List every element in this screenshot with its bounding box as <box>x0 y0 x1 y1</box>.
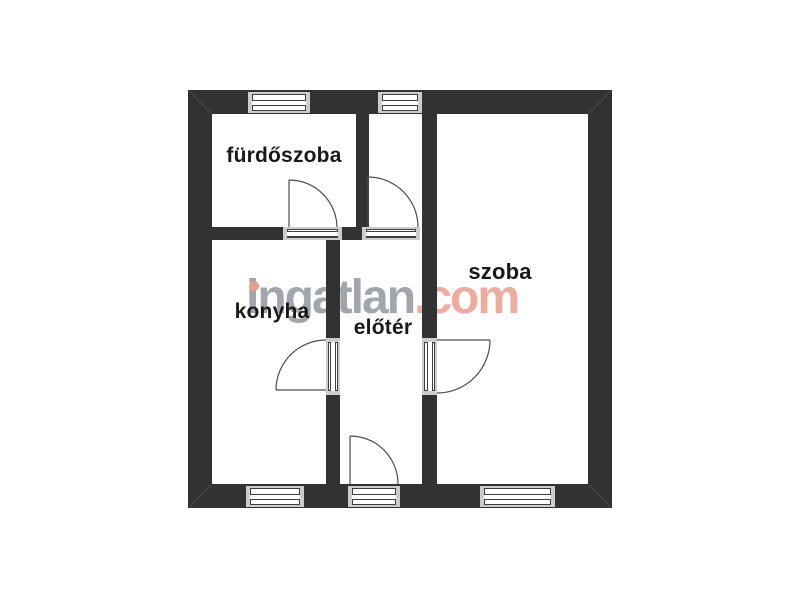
threshold-kitchen-door <box>326 338 340 395</box>
floor-plan: ingatlan.com <box>0 0 800 600</box>
corner-miter-top-right <box>588 90 612 114</box>
window-bathroom-top <box>248 92 310 113</box>
corner-miter-top-left <box>188 90 212 114</box>
corner-miter-bottom-right <box>588 484 612 508</box>
threshold-wc-door <box>362 227 420 240</box>
window-room-bottom <box>480 486 555 507</box>
window-wc-top <box>378 92 422 113</box>
room-label-eloter: előtér <box>354 316 412 340</box>
threshold-bathroom-door <box>283 227 342 240</box>
corner-miter-bottom-left <box>188 484 212 508</box>
entry-door-arc <box>350 436 398 484</box>
threshold-room-door <box>422 338 437 395</box>
room-label-szoba: szoba <box>468 259 531 285</box>
room-door-arc <box>437 340 490 393</box>
wc-door-arc <box>368 177 418 227</box>
window-kitchen-bottom <box>246 486 304 507</box>
threshold-entry-door <box>348 486 400 507</box>
room-label-konyha: konyha <box>235 300 310 324</box>
room-label-furdoszoba: fürdőszoba <box>226 144 341 168</box>
bathroom-door-arc <box>289 180 337 228</box>
door-swing-layer <box>0 0 800 600</box>
kitchen-door-arc <box>276 340 326 390</box>
